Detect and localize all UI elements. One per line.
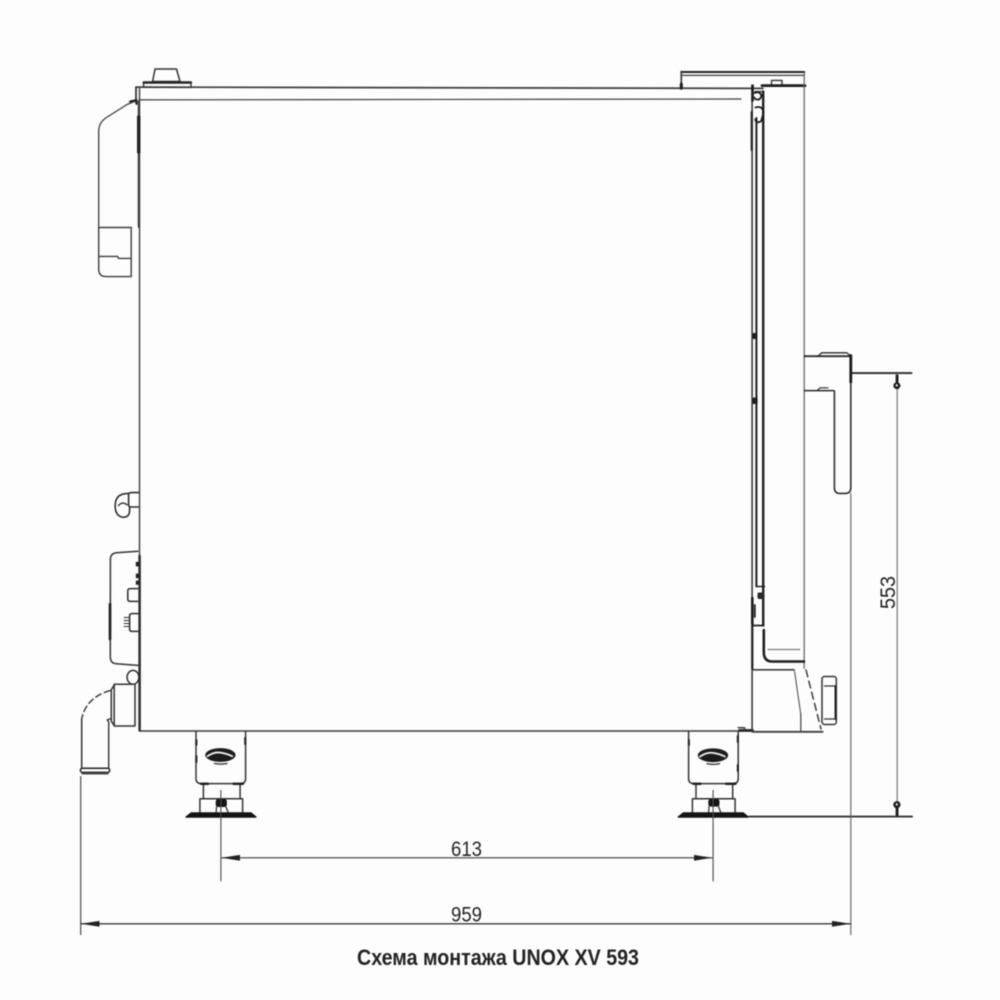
- svg-text:553: 553: [877, 576, 900, 609]
- svg-text:Схема монтажа UNOX XV 593: Схема монтажа UNOX XV 593: [357, 945, 639, 970]
- svg-text:959: 959: [451, 904, 482, 927]
- svg-text:613: 613: [451, 838, 482, 861]
